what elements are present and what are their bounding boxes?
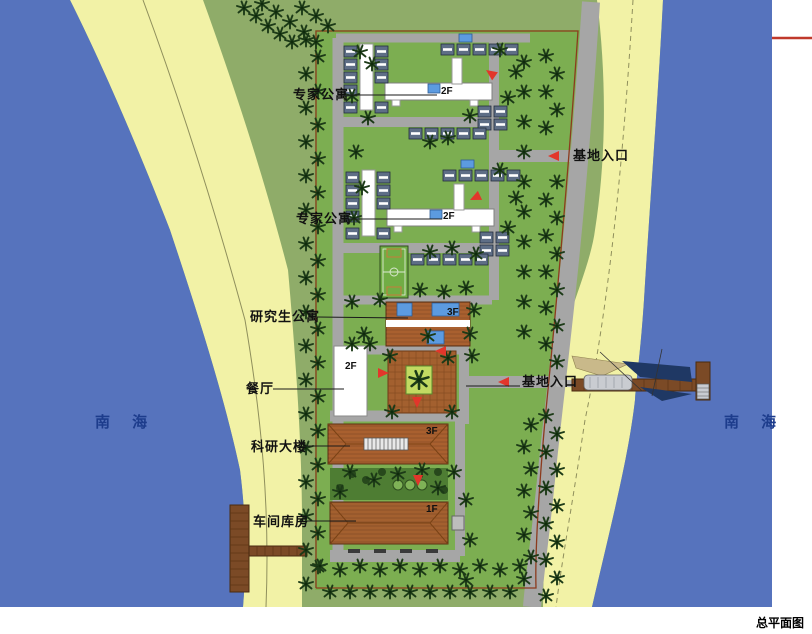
floor-label-expert-2: 2F bbox=[443, 212, 455, 222]
label-expert-apartment-1: 专家公寓 bbox=[293, 88, 349, 101]
label-base-entrance-2: 基地入口 bbox=[522, 375, 578, 388]
dining-hall-building bbox=[334, 346, 367, 416]
label-base-entrance-1: 基地入口 bbox=[573, 149, 629, 162]
floor-label-research: 3F bbox=[426, 427, 438, 437]
sea-name-east: 南 海 bbox=[724, 415, 785, 430]
floor-label-expert-1: 2F bbox=[441, 87, 453, 97]
site-plan-map bbox=[0, 0, 812, 634]
label-graduate-apartment: 研究生公寓 bbox=[250, 310, 320, 323]
basketball-court bbox=[380, 246, 408, 298]
sheet-title: 总平面图 bbox=[756, 617, 804, 629]
label-expert-apartment-2: 专家公寓 bbox=[296, 212, 352, 225]
floor-label-graduate: 3F bbox=[447, 308, 459, 318]
right-margin bbox=[772, 0, 812, 634]
sea-name-west: 南 海 bbox=[95, 415, 156, 430]
floor-label-workshop: 1F bbox=[426, 505, 438, 515]
floor-label-dining: 2F bbox=[345, 362, 357, 372]
label-dining-hall: 餐厅 bbox=[246, 382, 274, 395]
label-workshop-warehouse: 车间库房 bbox=[253, 515, 309, 528]
bottom-margin bbox=[0, 607, 812, 634]
site-plan-page: 专家公寓 基地入口 专家公寓 研究生公寓 餐厅 基地入口 科研大楼 车间库房 2… bbox=[0, 0, 812, 634]
label-research-building: 科研大楼 bbox=[251, 440, 307, 453]
